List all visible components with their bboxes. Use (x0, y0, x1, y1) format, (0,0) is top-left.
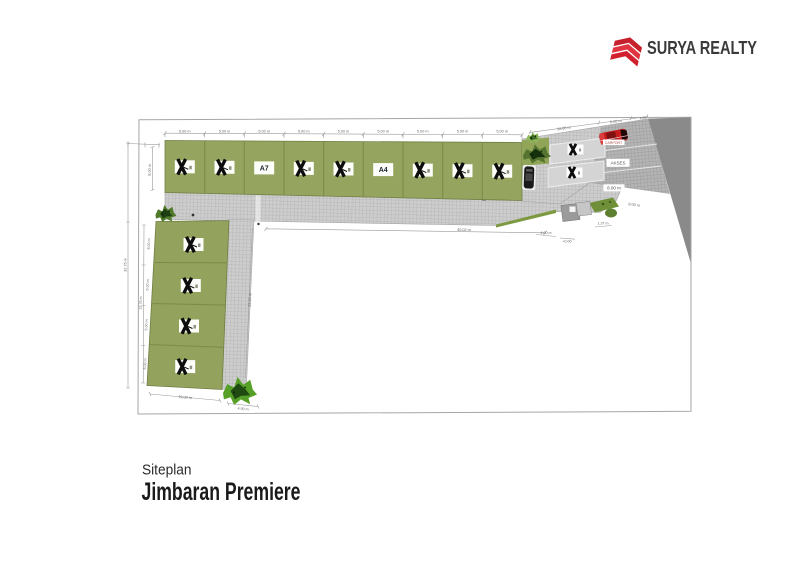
svg-text:24.00 m: 24.00 m (248, 293, 253, 307)
svg-text:Siteplan: Siteplan (142, 463, 192, 479)
svg-text:5.00 m: 5.00 m (496, 130, 508, 134)
svg-text:5.00 m: 5.00 m (179, 130, 191, 134)
svg-text:5.00 m: 5.00 m (145, 279, 150, 290)
svg-text:Jimbaran Premiere: Jimbaran Premiere (142, 478, 301, 506)
svg-text:40.02 m: 40.02 m (457, 228, 471, 232)
svg-text:CARPORT: CARPORT (605, 141, 623, 145)
svg-text:5.00 m: 5.00 m (377, 130, 389, 134)
svg-text:32.75 m: 32.75 m (123, 258, 127, 272)
svg-text:8.00 m: 8.00 m (148, 164, 152, 176)
svg-text:8.00 m: 8.00 m (147, 238, 152, 249)
svg-text:1.37 m: 1.37 m (598, 222, 609, 226)
svg-text:+0.00: +0.00 (562, 240, 571, 244)
svg-text:5.00 m: 5.00 m (457, 130, 469, 134)
svg-text:4.00 m: 4.00 m (541, 231, 552, 235)
svg-text:AKSES: AKSES (610, 161, 625, 166)
svg-text:8.00 m: 8.00 m (607, 186, 621, 191)
svg-text:5.00 m: 5.00 m (219, 130, 231, 134)
svg-text:5.00 m: 5.00 m (417, 130, 429, 134)
svg-text:5.00 m: 5.00 m (338, 130, 350, 134)
svg-text:22.75 m: 22.75 m (139, 296, 143, 309)
svg-text:5.00 m: 5.00 m (144, 319, 149, 330)
svg-text:5.00 m: 5.00 m (298, 130, 310, 134)
svg-text:A4: A4 (379, 167, 388, 174)
svg-text:5.00 m: 5.00 m (258, 130, 270, 134)
svg-text:A7: A7 (260, 165, 269, 172)
svg-text:5.00 m: 5.00 m (143, 358, 148, 369)
svg-text:SURYA REALTY: SURYA REALTY (647, 38, 757, 58)
